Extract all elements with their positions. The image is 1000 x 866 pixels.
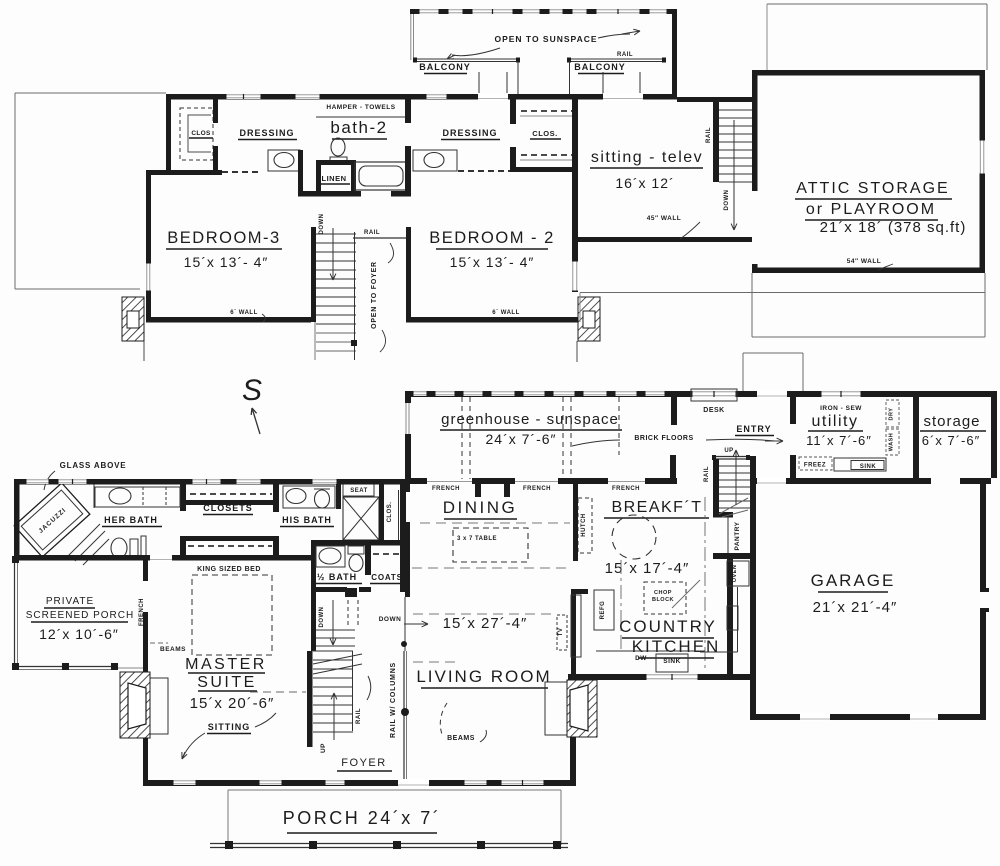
svg-text:SINK: SINK bbox=[663, 658, 681, 665]
svg-text:LIVING ROOM: LIVING ROOM bbox=[416, 667, 551, 686]
svg-text:FOYER: FOYER bbox=[341, 757, 386, 769]
svg-text:CHOP: CHOP bbox=[654, 590, 672, 596]
svg-text:TV: TV bbox=[558, 628, 564, 637]
svg-text:WASH: WASH bbox=[889, 433, 895, 452]
svg-text:24´x 7´-6″: 24´x 7´-6″ bbox=[486, 431, 557, 447]
svg-text:21´x 18´ (378 sq.ft): 21´x 18´ (378 sq.ft) bbox=[820, 219, 967, 236]
svg-text:utility: utility bbox=[812, 413, 859, 430]
svg-text:SCREENED PORCH: SCREENED PORCH bbox=[26, 610, 134, 621]
svg-text:3 x 7 TABLE: 3 x 7 TABLE bbox=[457, 536, 497, 542]
svg-text:CLOS: CLOS bbox=[191, 130, 211, 137]
svg-text:11´x 7´-6″: 11´x 7´-6″ bbox=[806, 433, 872, 448]
svg-text:storage: storage bbox=[923, 413, 980, 430]
svg-text:UP: UP bbox=[724, 448, 733, 454]
svg-text:SUITE: SUITE bbox=[197, 674, 257, 691]
svg-text:FRENCH: FRENCH bbox=[612, 486, 640, 492]
svg-text:UP: UP bbox=[320, 743, 327, 753]
svg-text:OPEN TO SUNSPACE: OPEN TO SUNSPACE bbox=[494, 34, 597, 44]
svg-text:15´x 13´- 4″: 15´x 13´- 4″ bbox=[450, 254, 535, 270]
svg-text:ENTRY: ENTRY bbox=[736, 424, 771, 434]
svg-text:IRON - SEW: IRON - SEW bbox=[820, 405, 862, 412]
svg-text:BALCONY: BALCONY bbox=[419, 62, 471, 72]
svg-text:12´x 10´-6″: 12´x 10´-6″ bbox=[39, 626, 119, 642]
svg-text:BEAMS: BEAMS bbox=[160, 646, 186, 653]
svg-text:SEAT: SEAT bbox=[350, 488, 368, 494]
svg-text:DOWN: DOWN bbox=[724, 190, 730, 211]
svg-text:BOOKS: BOOKS bbox=[572, 614, 578, 639]
svg-text:HER BATH: HER BATH bbox=[104, 515, 158, 525]
svg-text:HUTCH: HUTCH bbox=[581, 513, 587, 537]
svg-text:6´ WALL: 6´ WALL bbox=[492, 310, 520, 316]
svg-text:21´x 21´-4″: 21´x 21´-4″ bbox=[813, 599, 898, 616]
svg-text:or PLAYROOM: or PLAYROOM bbox=[806, 201, 936, 218]
svg-text:SITTING: SITTING bbox=[208, 722, 251, 732]
svg-text:DW: DW bbox=[635, 655, 647, 662]
svg-text:KITCHEN: KITCHEN bbox=[632, 637, 721, 656]
svg-text:BREAKF´T: BREAKF´T bbox=[611, 499, 702, 516]
svg-text:bath-2: bath-2 bbox=[330, 118, 387, 137]
svg-text:DRESSING: DRESSING bbox=[239, 128, 294, 138]
svg-text:BEAMS: BEAMS bbox=[447, 735, 475, 742]
svg-text:ATTIC STORAGE: ATTIC STORAGE bbox=[796, 180, 949, 197]
svg-text:15´x 13´- 4″: 15´x 13´- 4″ bbox=[184, 254, 269, 270]
svg-text:greenhouse - sunspace: greenhouse - sunspace bbox=[441, 411, 619, 428]
svg-text:BLOCK: BLOCK bbox=[652, 597, 674, 603]
svg-text:DESK: DESK bbox=[703, 407, 724, 414]
svg-text:CLOS.: CLOS. bbox=[387, 502, 393, 523]
svg-text:BEDROOM - 2: BEDROOM - 2 bbox=[429, 229, 555, 247]
svg-text:DOWN: DOWN bbox=[319, 214, 325, 235]
svg-text:OVEN: OVEN bbox=[732, 565, 738, 583]
svg-text:15´x 27´-4″: 15´x 27´-4″ bbox=[443, 615, 528, 632]
svg-text:54″ WALL: 54″ WALL bbox=[847, 258, 882, 265]
svg-text:6´ WALL: 6´ WALL bbox=[230, 310, 258, 316]
svg-text:KING SIZED BED: KING SIZED BED bbox=[197, 566, 261, 573]
svg-text:PANTRY: PANTRY bbox=[734, 521, 741, 550]
svg-text:HAMPER - TOWELS: HAMPER - TOWELS bbox=[326, 104, 395, 111]
svg-text:FRENCH: FRENCH bbox=[432, 486, 460, 492]
svg-text:RAIL W/ COLUMNS: RAIL W/ COLUMNS bbox=[390, 662, 397, 738]
svg-text:BEDROOM-3: BEDROOM-3 bbox=[167, 229, 280, 247]
svg-text:FRENCH: FRENCH bbox=[523, 486, 551, 492]
svg-text:OPEN TO FOYER: OPEN TO FOYER bbox=[371, 261, 378, 329]
svg-text:STU: STU bbox=[729, 612, 735, 624]
svg-text:CLOS.: CLOS. bbox=[532, 129, 557, 138]
svg-text:SINK: SINK bbox=[860, 464, 877, 470]
svg-text:HIS BATH: HIS BATH bbox=[282, 515, 332, 525]
svg-text:FREEZ: FREEZ bbox=[804, 463, 826, 469]
svg-text:S: S bbox=[242, 374, 262, 407]
svg-text:PRIVATE: PRIVATE bbox=[46, 596, 94, 607]
svg-text:DRY: DRY bbox=[889, 408, 895, 421]
svg-text:COUNTRY: COUNTRY bbox=[619, 617, 717, 636]
svg-text:RAIL: RAIL bbox=[617, 52, 633, 58]
svg-text:REFG: REFG bbox=[600, 601, 606, 620]
svg-text:MASTER: MASTER bbox=[185, 656, 267, 673]
svg-text:LINEN: LINEN bbox=[322, 174, 347, 183]
svg-text:DOWN: DOWN bbox=[379, 616, 402, 623]
svg-text:½ BATH: ½ BATH bbox=[317, 572, 357, 582]
svg-text:RAIL: RAIL bbox=[356, 708, 362, 724]
svg-text:GARAGE: GARAGE bbox=[811, 571, 896, 590]
svg-text:PORCH 24´x 7´: PORCH 24´x 7´ bbox=[283, 808, 442, 828]
svg-text:GLASS ABOVE: GLASS ABOVE bbox=[60, 461, 127, 470]
svg-text:6´x 7´-6″: 6´x 7´-6″ bbox=[922, 433, 980, 448]
svg-text:RAIL: RAIL bbox=[364, 230, 380, 236]
svg-text:DINING: DINING bbox=[443, 498, 518, 517]
svg-text:15´x 17´-4″: 15´x 17´-4″ bbox=[605, 560, 690, 577]
svg-text:DRESSING: DRESSING bbox=[442, 128, 497, 138]
svg-text:BRICK FLOORS: BRICK FLOORS bbox=[634, 435, 693, 442]
svg-text:RAIL: RAIL bbox=[706, 127, 712, 143]
svg-text:BALCONY: BALCONY bbox=[574, 62, 626, 72]
svg-text:COATS: COATS bbox=[371, 573, 402, 582]
svg-text:RAIL: RAIL bbox=[704, 466, 710, 482]
svg-text:16´x 12´: 16´x 12´ bbox=[615, 175, 674, 191]
svg-text:45″ WALL: 45″ WALL bbox=[647, 215, 682, 222]
svg-text:15´x 20´-6″: 15´x 20´-6″ bbox=[190, 695, 275, 712]
svg-text:DOWN: DOWN bbox=[319, 607, 325, 628]
svg-text:sitting - telev: sitting - telev bbox=[591, 149, 703, 166]
